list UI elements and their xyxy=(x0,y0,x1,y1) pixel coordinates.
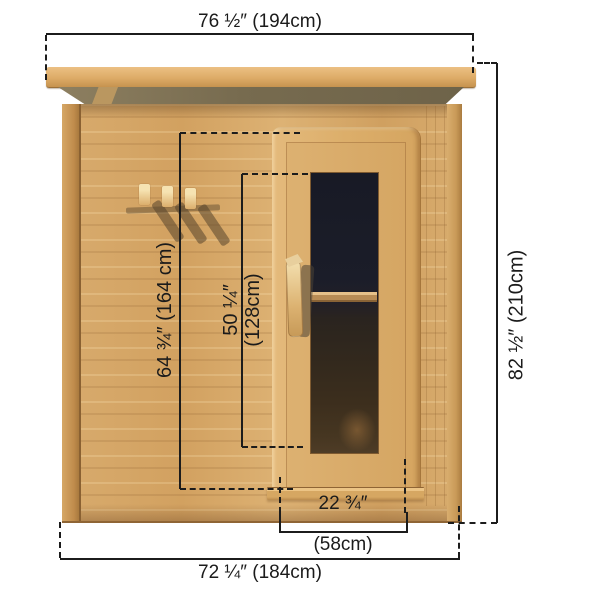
corner-trim-left xyxy=(62,104,81,521)
top-width-label: 76 ½″ (194cm) xyxy=(46,11,474,33)
bottom-width-extension-right xyxy=(458,506,460,558)
top-width-extension-left xyxy=(45,35,47,80)
glass-crossbar xyxy=(311,292,377,302)
wall-height-label: 64 ¾″ (164 cm) xyxy=(154,185,176,435)
top-width-dimension-line xyxy=(46,33,474,35)
glass-height-label-cm: (128cm) xyxy=(242,210,264,410)
right-height-dimension-line xyxy=(496,63,498,523)
right-height-extension-bottom xyxy=(448,522,497,524)
right-height-label: 82 ½″ (210cm) xyxy=(506,213,528,418)
glass-reflection xyxy=(338,408,376,452)
right-height-extension-top xyxy=(477,62,497,64)
glass-height-label-inches: 50 ¼″ xyxy=(220,210,242,410)
door-handle xyxy=(286,261,304,337)
bottom-width-label: 72 ¼″ (184cm) xyxy=(60,562,460,584)
roof-fascia xyxy=(58,87,464,104)
top-width-extension-right xyxy=(472,35,474,73)
wall-height-extension-top xyxy=(180,132,300,134)
vertical-plank-strip xyxy=(418,106,448,506)
wall-height-dimension-line xyxy=(179,133,181,489)
glass-height-label: 50 ¼″ (128cm) xyxy=(220,210,264,410)
door-width-label-inches: 22 ¾″ xyxy=(279,493,407,515)
door-width-bracket xyxy=(279,512,408,533)
bottom-width-dimension-line xyxy=(60,558,460,560)
coat-hook-peg xyxy=(185,188,196,209)
roof-plank xyxy=(46,67,476,88)
coat-hook-peg xyxy=(139,184,150,205)
wall-height-extension-bottom xyxy=(180,488,293,490)
bottom-width-extension-left xyxy=(59,522,61,558)
glass-height-extension-bottom xyxy=(242,446,303,448)
sauna-dimension-diagram: 76 ½″ (194cm) 82 ½″ (210cm) 72 ¼″ (184cm… xyxy=(0,0,600,600)
corner-trim-right xyxy=(447,104,462,521)
glass-height-extension-top xyxy=(242,173,308,175)
door-width-label-cm: (58cm) xyxy=(279,534,407,556)
